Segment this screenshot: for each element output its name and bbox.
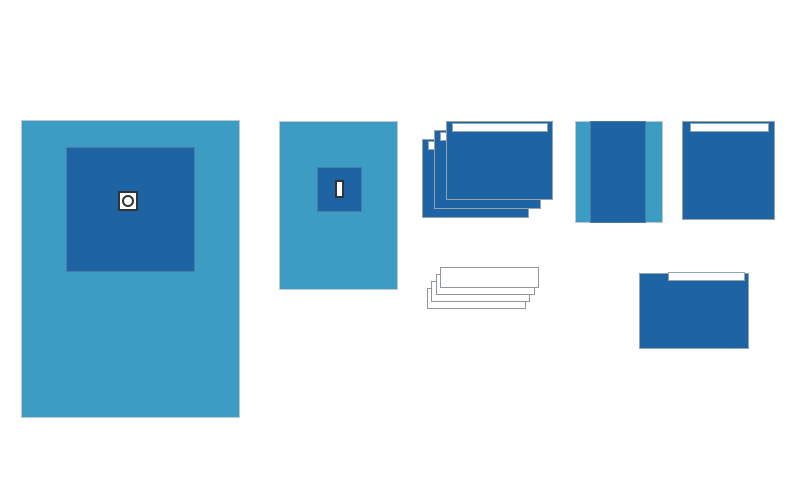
incise-drape-front-sheet — [446, 121, 553, 200]
incise-drape-front-strip — [452, 123, 548, 132]
bottom-drape-tape-strip — [668, 272, 745, 281]
drape-pack-illustration — [0, 0, 800, 489]
side-drape-sheet — [682, 121, 775, 220]
bottom-drape-sheet — [639, 273, 749, 349]
large-drape-fenestration-hole — [122, 195, 134, 207]
towel-1 — [440, 267, 539, 288]
side-drape-tape-strip — [690, 123, 769, 132]
mayo-cover-center-band — [590, 121, 646, 223]
small-drape-fenestration-slot — [335, 180, 344, 198]
